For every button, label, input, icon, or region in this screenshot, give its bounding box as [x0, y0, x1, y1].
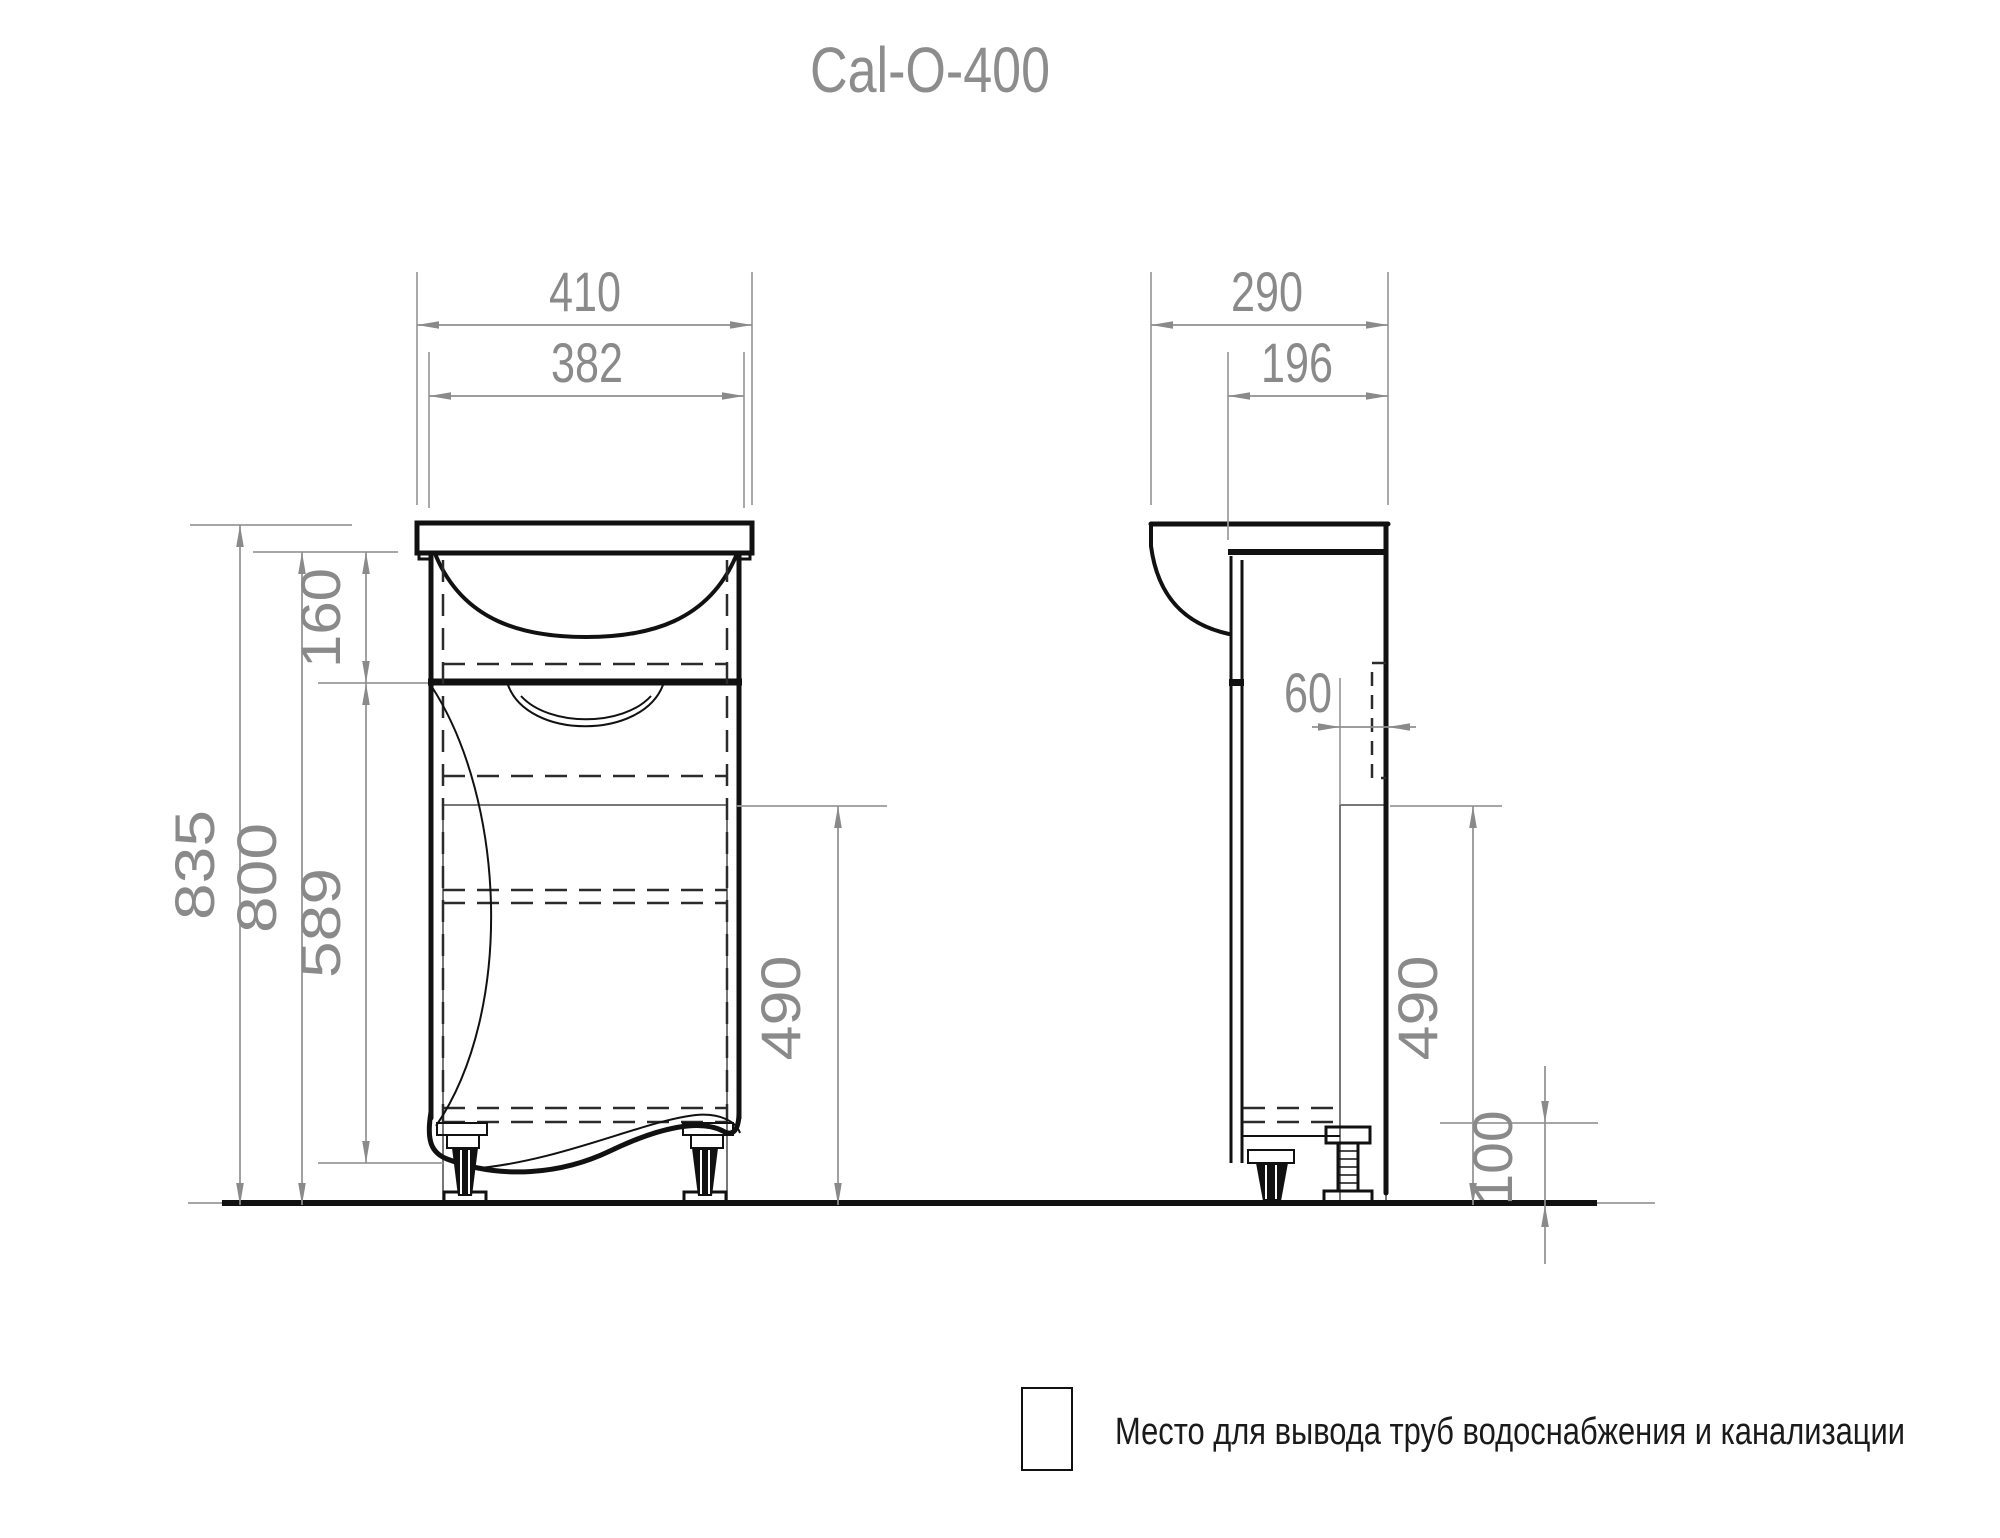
legend-hatch-swatch — [1022, 1388, 1072, 1470]
dim-490-side: 490 — [1386, 956, 1449, 1061]
dim-835: 835 — [163, 810, 226, 920]
side-pipe-zone-hatch — [1340, 805, 1386, 1205]
dim-60: 60 — [1284, 661, 1332, 724]
door-gap-tick — [1229, 679, 1244, 686]
door-swing-arc — [432, 687, 491, 1126]
basin-bowl-curve — [436, 556, 736, 637]
front-view — [417, 523, 752, 1205]
dim-100: 100 — [1461, 1111, 1524, 1206]
vanity-dimension-drawing: Cal-O-400 — [0, 0, 2000, 1538]
side-dimensions: 290 196 60 490 100 — [1151, 260, 1598, 1264]
side-rear-foot — [1324, 1127, 1372, 1203]
drawing-title: Cal-O-400 — [810, 34, 1050, 106]
side-view — [1151, 524, 1388, 1205]
dim-160: 160 — [289, 568, 352, 668]
dim-382: 382 — [551, 331, 623, 394]
dim-589: 589 — [289, 868, 352, 978]
side-front-leg — [1248, 1150, 1294, 1201]
dim-490-front: 490 — [749, 956, 812, 1061]
basin-front-curve — [1151, 546, 1229, 634]
basin-rim-front — [417, 523, 752, 553]
dim-290: 290 — [1231, 260, 1303, 323]
front-left-leg — [437, 1123, 487, 1203]
dim-410: 410 — [549, 260, 621, 323]
dim-800: 800 — [225, 823, 288, 933]
dim-196: 196 — [1261, 331, 1333, 394]
front-dimensions: 410 382 835 800 160 589 490 — [163, 260, 887, 1205]
technical-drawing-sheet: Cal-O-400 — [0, 0, 2000, 1538]
legend: Место для вывода труб водоснабжения и ка… — [1022, 1388, 1905, 1470]
front-right-leg — [683, 1123, 733, 1203]
legend-text: Место для вывода труб водоснабжения и ка… — [1115, 1411, 1905, 1453]
